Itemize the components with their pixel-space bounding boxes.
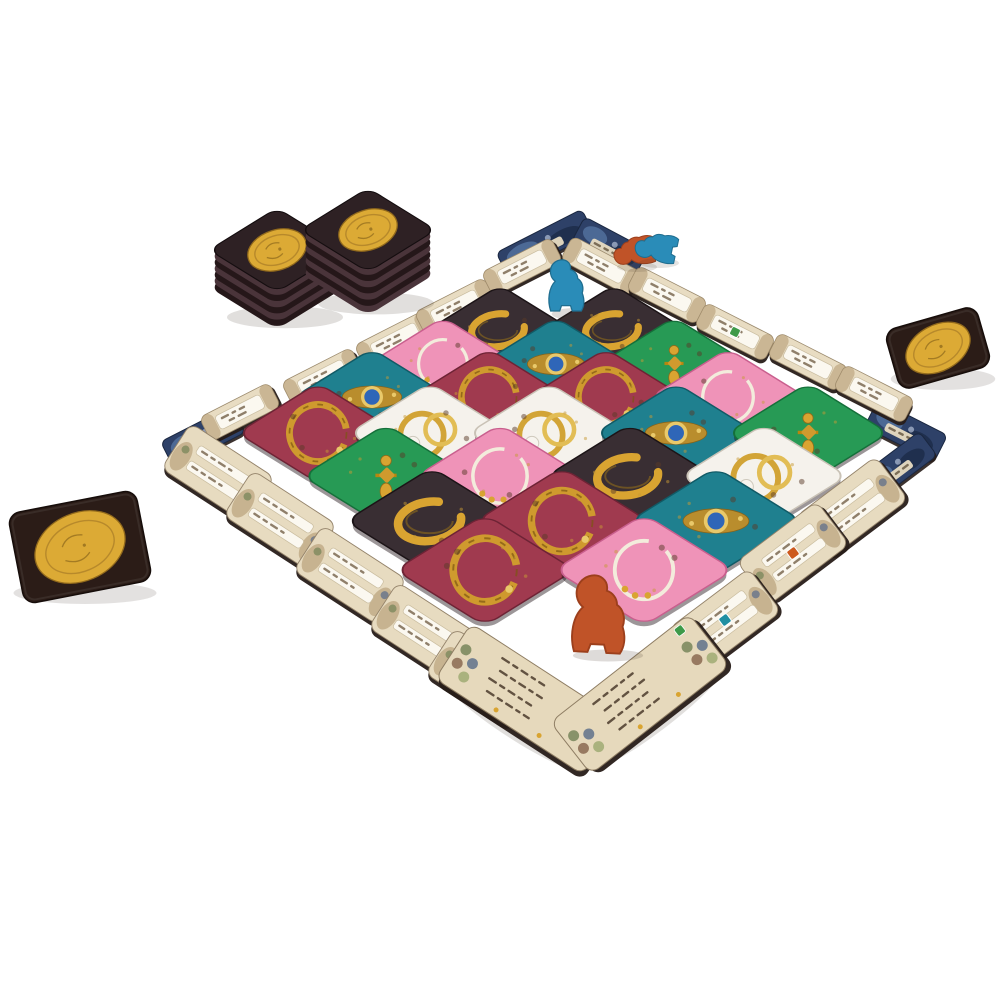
coin-card xyxy=(7,489,156,604)
blue-gem-brooch-icon xyxy=(683,509,749,533)
scene-svg xyxy=(0,0,1000,1000)
board-game-product-photo xyxy=(0,0,1000,1000)
coin-card xyxy=(884,305,995,391)
blue-meeple-lying xyxy=(633,229,679,268)
